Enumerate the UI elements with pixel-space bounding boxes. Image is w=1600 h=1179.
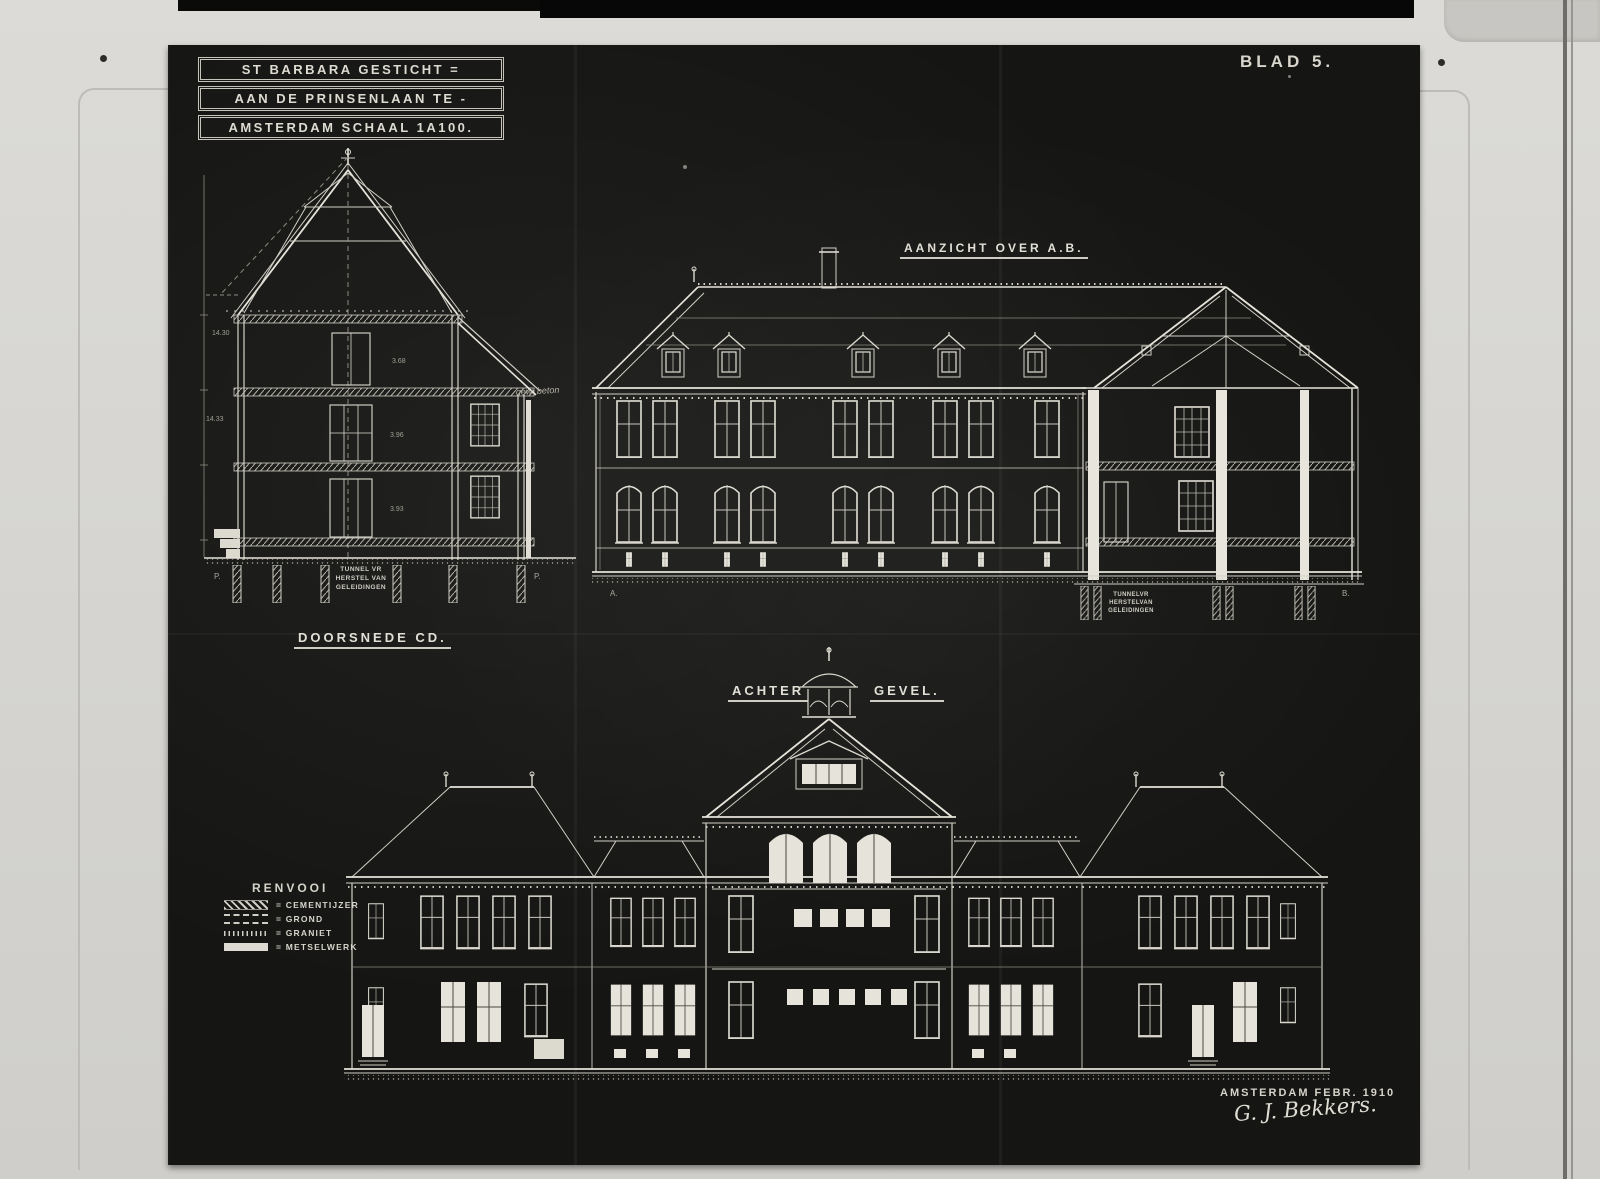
section-roof [206,148,470,557]
section-dim-labels: 14.30 14.33 3.68 3.96 3.93 [206,330,406,513]
legend-label: = GROND [276,914,323,924]
legend-swatch-hatch [224,900,268,910]
dust-speck [683,165,687,169]
legend-item-grond: = GROND [224,914,359,924]
registration-hole-right [1438,59,1445,66]
handwritten-note-beton: gew. beton [516,385,560,397]
elevation-upper-windows [614,401,1062,458]
archival-photo: ST BARBARA GESTICHT = AAN DE PRINSENLAAN… [0,0,1600,1179]
title-line-1: ST BARBARA GESTICHT = [198,57,504,82]
mat-board-edge-right [1420,90,1470,1170]
marker-b: B. [1342,589,1350,598]
legend: RENVOOI = CEMENTIJZER = GROND = GRANIET … [224,881,359,956]
dim-3-68: 3.68 [392,358,406,365]
section-drawing: 14.30 14.33 3.68 3.96 3.93 TUNNEL VR HER… [186,145,586,645]
dim-14-30: 14.30 [212,330,230,337]
registration-hole-left [100,55,107,62]
cut-column-1 [1088,390,1099,580]
rear-tower-windows [712,833,946,1039]
datum-left: P. [214,572,221,581]
table-edge-highlight [1571,0,1573,1179]
tunnel-note-line2: HERSTELVAN [1109,600,1153,606]
legend-swatch-dashes [224,914,268,924]
section-dimension-line [200,175,208,557]
tunnel-note-line1: TUNNELVR [1113,592,1149,598]
elevation-ground [592,572,1364,620]
legend-label: = METSELWERK [276,942,358,952]
rear-right-wing-windows [966,898,1055,1058]
tunnel-note-line2: HERSTEL VAN [336,575,387,582]
cut-door [1104,482,1128,542]
section-ground-and-piles [204,558,576,603]
background-sheet-corner [1444,0,1600,42]
rear-left-pavilion-windows [358,896,554,1065]
elevation-dormers [657,332,1051,377]
section-annex-windows [471,404,499,518]
title-block: ST BARBARA GESTICHT = AAN DE PRINSENLAAN… [198,57,504,144]
elevation-drawing: A. B. TUNNELVR HERSTELVAN GELEIDINGEN [586,240,1376,665]
rear-right-pavilion-windows [1136,896,1297,1065]
elevation-tunnel-note: TUNNELVR HERSTELVAN GELEIDINGEN [1108,592,1154,614]
marker-a: A. [610,589,618,598]
tunnel-note-line3: GELEIDINGEN [336,584,386,591]
dust-speck [1288,75,1291,78]
drawing-sheet: ST BARBARA GESTICHT = AAN DE PRINSENLAAN… [168,45,1420,1165]
legend-item-graniet: = GRANIET [224,928,359,938]
title-line-3: AMSTERDAM SCHAAL 1A100. [198,115,504,140]
tunnel-note-line1: TUNNEL VR [340,566,382,573]
sheet-number: BLAD 5. [1240,52,1334,72]
elevation-roof [592,248,1286,398]
title-line-2: AAN DE PRINSENLAAN TE - [198,86,504,111]
elevation-markers: A. B. [610,589,1350,598]
legend-label: = CEMENTIJZER [276,900,359,910]
legend-label: = GRANIET [276,928,332,938]
elevation-basement-windows [626,552,1050,567]
section-walls [238,315,540,560]
section-tunnel-note: TUNNEL VR HERSTEL VAN GELEIDINGEN [336,566,387,591]
datum-right: P. [534,572,541,581]
dim-3-96: 3.96 [390,432,404,439]
elevation-facade [596,392,1083,572]
dim-3-93: 3.93 [390,506,404,513]
section-footing [214,529,240,558]
rear-cellar-hatch [534,1039,564,1059]
cut-column-3 [1300,390,1309,580]
dim-14-33: 14.33 [206,416,224,423]
table-edge-line [1563,0,1567,1179]
rear-left-wing-windows [608,898,697,1058]
legend-item-metselwerk: = METSELWERK [224,942,359,952]
cut-grid-window-upper [1175,407,1209,457]
rear-cupola [800,647,858,717]
rear-facade-drawing [332,637,1342,1127]
cut-column-2 [1216,390,1227,580]
elevation-lower-windows [614,485,1062,543]
cut-grid-window-lower [1179,481,1213,531]
legend-swatch-solid [224,943,268,951]
tunnel-note-line3: GELEIDINGEN [1108,608,1154,614]
legend-item-cementijzer: = CEMENTIJZER [224,900,359,910]
legend-title: RENVOOI [252,881,359,895]
legend-swatch-stipple [224,931,268,936]
rear-ground [344,1039,1330,1081]
adjacent-sheet-edge-thick [540,0,1414,18]
elevation-cut-section [1083,287,1358,580]
section-floors [234,315,534,546]
mat-board-edge-left [78,88,170,1170]
section-interior-doors [330,333,372,537]
